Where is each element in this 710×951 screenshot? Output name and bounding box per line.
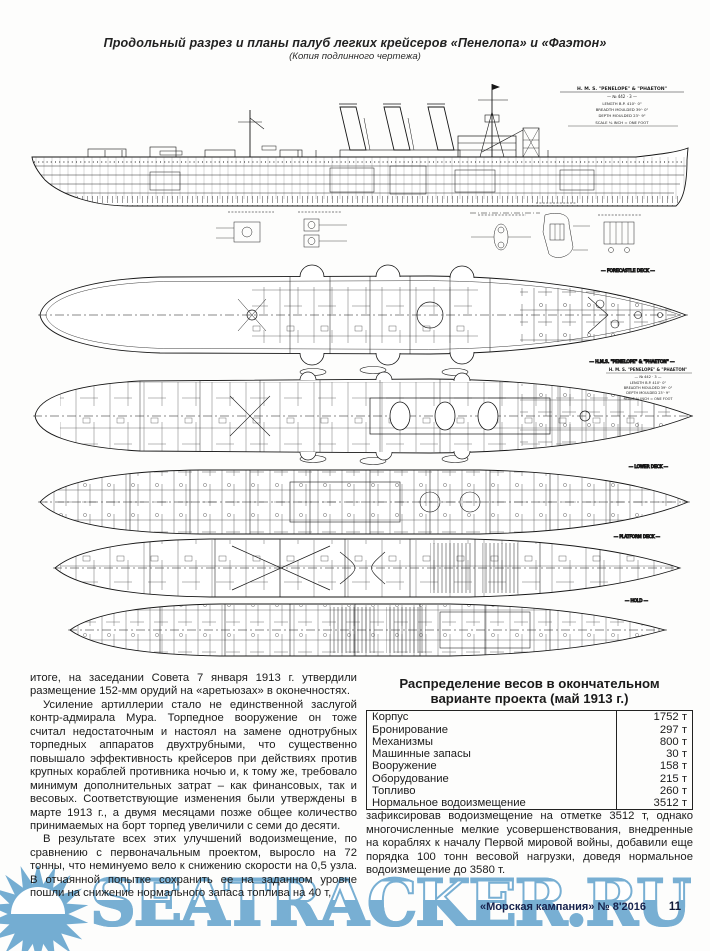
- table-row: Нормальное водоизмещение3512 т: [367, 797, 692, 809]
- plan-hold: — HOLD —: [68, 598, 667, 657]
- table-title-line2: варианте проекта (май 1913 г.): [366, 691, 693, 706]
- row-value: 158 т: [616, 760, 692, 772]
- profile-view: [32, 84, 688, 213]
- row-label: Вооружение: [367, 760, 616, 772]
- svg-text:— HOLD —: — HOLD —: [625, 598, 648, 603]
- svg-text:BREADTH MOULDED 39'· 0": BREADTH MOULDED 39'· 0": [596, 107, 649, 112]
- row-label: Корпус: [367, 711, 616, 723]
- row-value: 297 т: [616, 724, 692, 736]
- plan-forecastle-deck: — FORECASTLE DECK — — H.M.S. "PENELOPE" …: [38, 265, 688, 365]
- row-label: Топливо: [367, 785, 616, 797]
- svg-text:— H.M.S. "PENELOPE" & "PHAETON: — H.M.S. "PENELOPE" & "PHAETON" —: [589, 359, 675, 365]
- svg-text:H. M. S. "PENELOPE" & "PHAETON: H. M. S. "PENELOPE" & "PHAETON": [609, 367, 687, 372]
- paragraph: зафиксировав водоизмещение на отметке 35…: [366, 810, 693, 877]
- svg-text:— LOWER DECK —: — LOWER DECK —: [629, 464, 668, 469]
- table-row: Бронирование297 т: [367, 724, 692, 736]
- table-row: Топливо260 т: [367, 785, 692, 797]
- paragraph: В результате всех этих улучшений водоизм…: [30, 833, 357, 900]
- paragraph: Усиление артиллерии стало не единственно…: [30, 699, 357, 834]
- left-column: итоге, на заседании Совета 7 января 1913…: [30, 672, 357, 901]
- row-value: 215 т: [616, 773, 692, 785]
- table-title-line1: Распределение весов в окончательном: [366, 676, 693, 691]
- plan-upper-deck: [33, 367, 694, 465]
- row-value: 800 т: [616, 736, 692, 748]
- footer-page-number: 11: [660, 901, 690, 913]
- row-label: Нормальное водоизмещение: [367, 797, 616, 809]
- ship-drawing: H. M. S. "PENELOPE" & "PHAETON" — № 442 …: [0, 0, 710, 670]
- svg-text:SCALE ⅛ INCH = ONE FOOT: SCALE ⅛ INCH = ONE FOOT: [595, 120, 649, 125]
- row-label: Оборудование: [367, 773, 616, 785]
- row-value: 3512 т: [616, 797, 692, 809]
- footer-journal: «Морская кампания» № 8'2016: [468, 901, 658, 913]
- plan-lower-deck: — LOWER DECK —: [38, 464, 690, 534]
- svg-text:BREADTH MOULDED 39'· 0": BREADTH MOULDED 39'· 0": [624, 386, 673, 390]
- svg-text:LENGTH B.P. 410'· 0": LENGTH B.P. 410'· 0": [630, 381, 667, 385]
- row-label: Бронирование: [367, 724, 616, 736]
- table-row: Вооружение158 т: [367, 760, 692, 772]
- profile-title-block: H. M. S. "PENELOPE" & "PHAETON" — № 442 …: [560, 86, 684, 126]
- row-value: 1752 т: [616, 711, 692, 723]
- paragraph: итоге, на заседании Совета 7 января 1913…: [30, 672, 357, 699]
- table-row: Механизмы800 т: [367, 736, 692, 748]
- svg-text:— FORECASTLE DECK —: — FORECASTLE DECK —: [601, 268, 655, 274]
- row-label: Механизмы: [367, 736, 616, 748]
- row-value: 30 т: [616, 748, 692, 760]
- weights-table: Корпус1752 т Бронирование297 т Механизмы…: [366, 710, 693, 810]
- svg-text:DEPTH MOULDED 23'· 9": DEPTH MOULDED 23'· 9": [626, 391, 670, 395]
- table-row: Корпус1752 т: [367, 711, 692, 723]
- svg-text:H. M. S. "PENELOPE" & "PHAETON: H. M. S. "PENELOPE" & "PHAETON": [577, 86, 667, 92]
- magazine-page: { "header": { "title": "Продольный разре…: [0, 0, 710, 951]
- table-title: Распределение весов в окончательном вари…: [366, 676, 693, 706]
- plan-platform-deck: — PLATFORM DECK —: [53, 534, 682, 598]
- right-column: Распределение весов в окончательном вари…: [366, 676, 693, 878]
- table-row: Машинные запасы30 т: [367, 748, 692, 760]
- svg-text:— № 442 · 3 —: — № 442 · 3 —: [607, 94, 637, 99]
- svg-text:DEPTH MOULDED 23'· 9": DEPTH MOULDED 23'· 9": [598, 113, 645, 118]
- svg-text:SCALE ⅛ INCH = ONE FOOT: SCALE ⅛ INCH = ONE FOOT: [623, 397, 673, 401]
- table-row: Оборудование215 т: [367, 773, 692, 785]
- row-value: 260 т: [616, 785, 692, 797]
- svg-text:LENGTH B.P. 410'· 0": LENGTH B.P. 410'· 0": [602, 101, 642, 106]
- svg-text:— PLATFORM DECK —: — PLATFORM DECK —: [614, 534, 660, 539]
- svg-text:— № 442 · 3 —: — № 442 · 3 —: [635, 375, 662, 379]
- section-details: [216, 203, 642, 258]
- row-label: Машинные запасы: [367, 748, 616, 760]
